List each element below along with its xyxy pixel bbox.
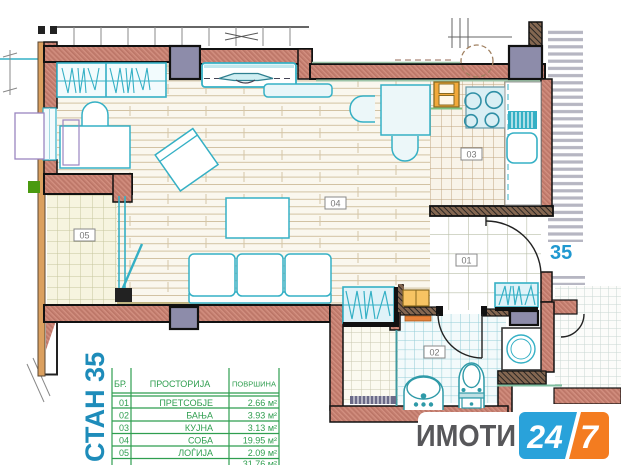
svg-text:ПРЕТСОБЈЕ: ПРЕТСОБЈЕ <box>159 398 213 408</box>
svg-text:35: 35 <box>550 242 572 264</box>
svg-text:04: 04 <box>330 199 340 209</box>
svg-text:03: 03 <box>466 150 476 160</box>
svg-text:05: 05 <box>119 448 129 458</box>
svg-text:01: 01 <box>119 398 129 408</box>
svg-text:СОБА: СОБА <box>188 436 213 446</box>
svg-text:31.76 м²: 31.76 м² <box>243 459 277 465</box>
svg-text:03: 03 <box>119 423 129 433</box>
svg-text:2.09 м²: 2.09 м² <box>248 448 277 458</box>
svg-text:БР.: БР. <box>114 379 127 389</box>
svg-text:24: 24 <box>526 419 563 455</box>
svg-text:СТАН 35: СТАН 35 <box>80 352 110 462</box>
svg-text:01: 01 <box>461 256 471 266</box>
svg-text:02: 02 <box>119 411 129 421</box>
svg-text:КУЈНА: КУЈНА <box>185 423 213 433</box>
svg-text:2.66 м²: 2.66 м² <box>248 398 277 408</box>
svg-text:02: 02 <box>429 348 439 358</box>
svg-text:7: 7 <box>580 419 600 455</box>
svg-text:3.93 м²: 3.93 м² <box>248 411 277 421</box>
svg-text:ИМОТИ: ИМОТИ <box>416 418 516 453</box>
svg-text:04: 04 <box>119 436 129 446</box>
svg-text:3.13 м²: 3.13 м² <box>248 423 277 433</box>
svg-text:ПОВРШИНА: ПОВРШИНА <box>232 380 276 389</box>
svg-text:05: 05 <box>79 231 89 241</box>
svg-text:БАЊА: БАЊА <box>186 411 213 421</box>
svg-text:ЛОЃИЈА: ЛОЃИЈА <box>178 448 213 458</box>
svg-text:ПРОСТОРИЈА: ПРОСТОРИЈА <box>150 379 211 389</box>
svg-text:19.95 м²: 19.95 м² <box>243 436 277 446</box>
